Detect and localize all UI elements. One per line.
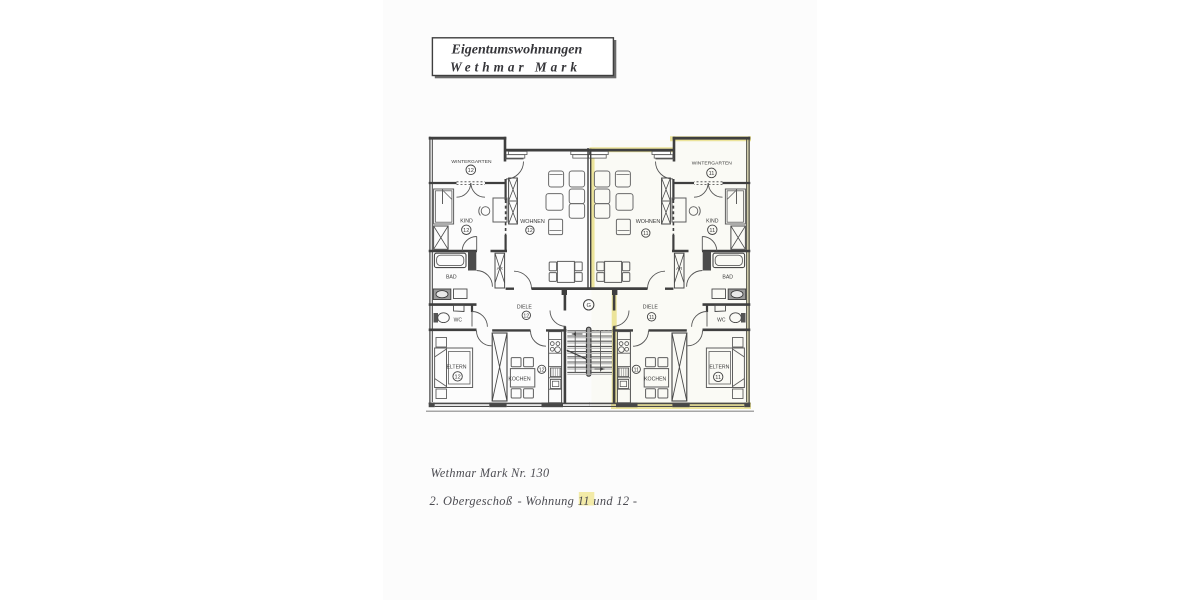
svg-text:- Wohnung 11 und 12 -: - Wohnung 11 und 12 -: [518, 494, 638, 508]
svg-text:11: 11: [643, 231, 648, 237]
svg-text:AR: AR: [497, 266, 503, 271]
svg-text:AR: AR: [676, 266, 682, 271]
svg-text:11: 11: [634, 367, 639, 373]
svg-text:Eigentumswohnungen: Eigentumswohnungen: [451, 43, 583, 58]
svg-text:11: 11: [709, 228, 715, 234]
svg-text:WINTERGARTEN: WINTERGARTEN: [451, 159, 492, 165]
svg-text:11: 11: [715, 375, 721, 381]
svg-text:KOCHEN: KOCHEN: [644, 377, 666, 383]
svg-text:ELTERN: ELTERN: [446, 364, 466, 370]
svg-text:12: 12: [468, 168, 474, 174]
svg-text:KOCHEN: KOCHEN: [508, 377, 530, 383]
svg-text:BAD: BAD: [722, 275, 733, 281]
svg-text:12: 12: [523, 313, 529, 319]
svg-text:WOHNEN: WOHNEN: [520, 219, 545, 225]
svg-text:12: 12: [463, 228, 469, 234]
svg-text:ELTERN: ELTERN: [709, 364, 729, 370]
svg-text:2. Obergeschoß: 2. Obergeschoß: [430, 494, 513, 508]
svg-text:DIELE: DIELE: [517, 305, 533, 311]
svg-text:12: 12: [454, 375, 460, 381]
svg-text:WINTERGARTEN: WINTERGARTEN: [692, 160, 733, 166]
svg-text:G: G: [586, 303, 591, 309]
svg-text:WC: WC: [717, 317, 726, 323]
svg-text:Wethmar Mark Nr. 130: Wethmar Mark Nr. 130: [431, 466, 550, 480]
svg-text:12: 12: [539, 367, 545, 373]
svg-text:WOHNEN: WOHNEN: [636, 219, 661, 225]
svg-text:Wethmar Mark: Wethmar Mark: [450, 59, 581, 74]
svg-text:11: 11: [709, 171, 715, 177]
svg-text:KIND: KIND: [706, 218, 719, 224]
svg-text:DIELE: DIELE: [643, 305, 659, 311]
svg-text:WC: WC: [454, 317, 463, 323]
svg-text:BAD: BAD: [446, 275, 457, 281]
svg-text:12: 12: [527, 228, 533, 234]
svg-text:KIND: KIND: [460, 218, 473, 224]
svg-text:11: 11: [649, 315, 654, 321]
